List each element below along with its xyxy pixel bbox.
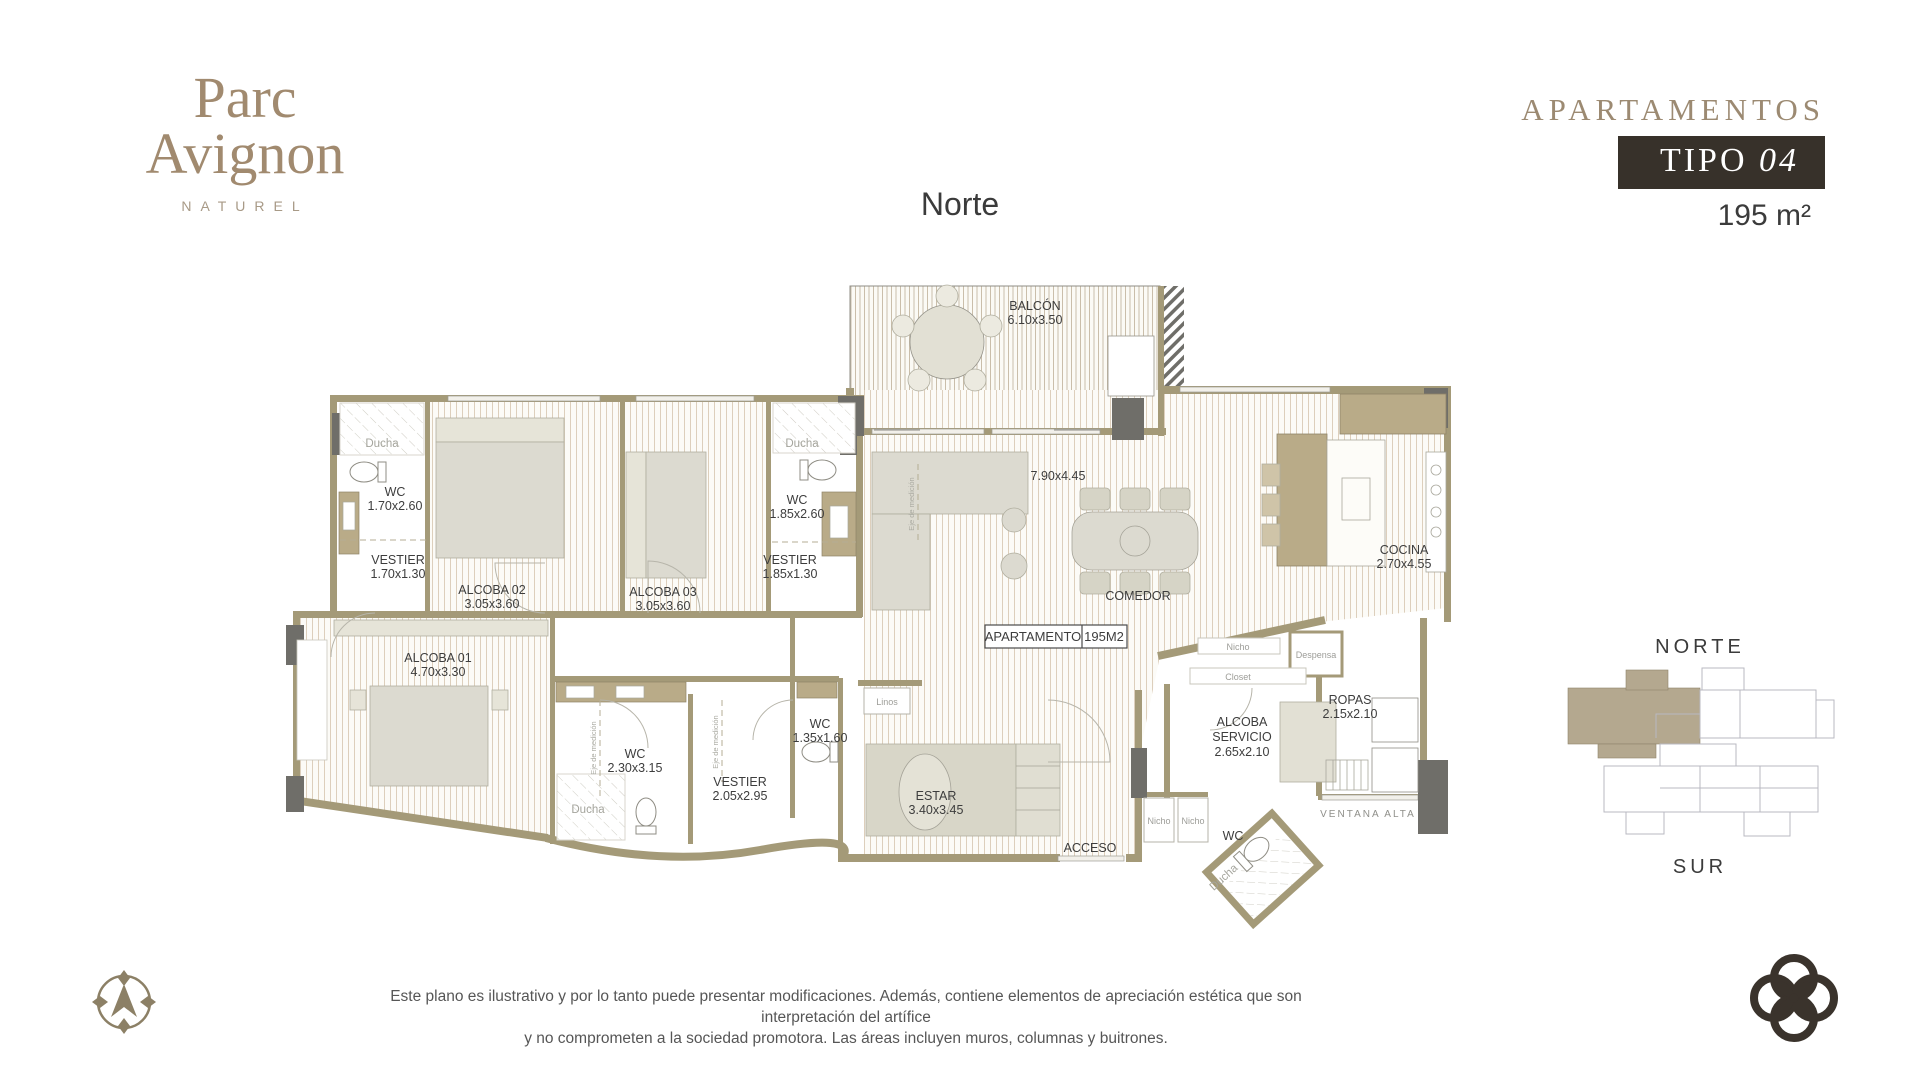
dining-chair (1120, 488, 1150, 510)
armchair (1002, 508, 1026, 532)
label-vestier2-dims: 1.70x1.30 (371, 567, 426, 581)
toilet-bowl (808, 460, 836, 480)
toilet (350, 462, 386, 482)
floor-plan: APARTAMENTO 195M2 BALCÓN 6.10x3.50 WC 1.… (0, 0, 1920, 1080)
sink-bath1-a (566, 686, 594, 698)
label-ropas: ROPAS (1329, 693, 1372, 707)
rosette-logo (1754, 958, 1834, 1038)
stool (1262, 464, 1280, 486)
chair (980, 315, 1002, 337)
label-acceso: ACCESO (1064, 841, 1117, 855)
wall-bath1-left (550, 618, 555, 844)
wall-nichos-top (1138, 792, 1208, 797)
dining-chair (1160, 488, 1190, 510)
toilet-bowl (350, 462, 378, 482)
label-ducha-1: Ducha (365, 438, 399, 450)
bedroom1-wardrobe (297, 640, 327, 760)
toilet (636, 798, 656, 834)
sink-bath1-b (616, 686, 644, 698)
label-estar-dims: 3.40x3.45 (909, 803, 964, 817)
compass-point-s (118, 1018, 130, 1034)
sink-bath2 (343, 502, 355, 530)
compass-point-e (140, 996, 156, 1008)
wall-bedroom2-3 (620, 402, 625, 614)
wall-bath2-bedroom2 (425, 402, 430, 614)
label-despensa: Despensa (1296, 650, 1337, 660)
toilet-bowl (802, 742, 830, 762)
keyplan-unit (1816, 700, 1834, 738)
keyplan-unit (1626, 812, 1664, 834)
wall-baths-top (555, 676, 839, 682)
label-servicio-dims: 2.65x2.10 (1215, 745, 1270, 759)
wall-vestier-wc (790, 618, 795, 818)
stool (1262, 494, 1280, 516)
compass-needle (111, 984, 137, 1017)
label-vestier3: VESTIER (763, 553, 817, 567)
tag-area: 195M2 (1084, 629, 1124, 644)
wall-bedrooms-bottom (293, 611, 862, 618)
label-closet: Closet (1225, 672, 1251, 682)
label-estar: ESTAR (916, 789, 957, 803)
balcony-hatch-strip (1162, 286, 1184, 392)
keyplan-unit (1660, 744, 1736, 766)
label-wc1-dims: 2.30x3.15 (608, 761, 663, 775)
label-vestier3-dims: 1.85x1.30 (763, 567, 818, 581)
label-wc-servicio: WC (1223, 829, 1244, 843)
chair (936, 285, 958, 307)
label-ventana-alta: VENTANA ALTA (1320, 809, 1416, 820)
bed2 (436, 442, 564, 558)
window-bedroom2 (448, 396, 600, 401)
sink-bath3 (830, 506, 848, 538)
wall-estar-bottom (838, 854, 1060, 862)
bed1-closet (334, 620, 548, 636)
label-wc3: WC (787, 493, 808, 507)
label-wc-social: WC (810, 717, 831, 731)
label-ducha-3: Ducha (571, 804, 605, 816)
keyplan-unit (1700, 690, 1816, 738)
dining-table (1072, 512, 1198, 570)
label-alcoba01-dims: 4.70x3.30 (411, 665, 466, 679)
label-nicho-1: Nicho (1147, 816, 1170, 826)
window-kitchen (1180, 387, 1330, 392)
apartment-tag: APARTAMENTO 195M2 (985, 625, 1127, 648)
wall-linos-top (858, 680, 922, 686)
tag-name: APARTAMENTO (985, 629, 1082, 644)
label-balcon: BALCÓN (1009, 298, 1060, 313)
label-servicio-1: ALCOBA (1217, 715, 1268, 729)
estar-shelves (1016, 744, 1060, 836)
wall-wc-estar (838, 678, 843, 858)
label-cocina-dims: 2.70x4.55 (1377, 557, 1432, 571)
chair (908, 369, 930, 391)
label-ducha-2: Ducha (785, 438, 819, 450)
rosette-center (1790, 994, 1799, 1003)
label-vestier1-dims: 2.05x2.95 (713, 789, 768, 803)
keyplan-unit (1702, 668, 1744, 690)
sofa-chaise (872, 514, 930, 610)
label-alcoba02-dims: 3.05x3.60 (465, 597, 520, 611)
label-balcon-dims: 6.10x3.50 (1008, 313, 1063, 327)
wall-balcony-right (1158, 286, 1164, 436)
armchair (1001, 553, 1027, 579)
label-ropas-dims: 2.15x2.10 (1323, 707, 1378, 721)
balcony-table (910, 305, 984, 379)
kitchen-counter (1277, 434, 1327, 566)
toilet-tank (830, 742, 838, 762)
label-cocina: COCINA (1380, 543, 1429, 557)
highlight-main (1568, 688, 1700, 744)
chair (892, 315, 914, 337)
vanity-wc-social (797, 682, 837, 698)
label-wc2-dims: 1.70x2.60 (368, 499, 423, 513)
column (286, 776, 304, 812)
toilet-bowl (636, 798, 656, 826)
column (1131, 748, 1147, 798)
balcony-planter (1108, 336, 1154, 396)
nightstand (350, 690, 366, 710)
label-sala-dims: 7.90x4.45 (1031, 469, 1086, 483)
keyplan-unit (1744, 812, 1790, 836)
label-nicho-2: Nicho (1181, 816, 1204, 826)
compass-point-w (92, 996, 108, 1008)
keyplan-unit (1604, 766, 1818, 812)
toilet-tank (636, 826, 656, 834)
washer (1372, 698, 1418, 742)
wall-bath1-vestier (688, 694, 693, 844)
toilet (802, 742, 838, 762)
label-alcoba03: ALCOBA 03 (629, 585, 696, 599)
highlight-tab (1598, 744, 1656, 758)
rack-lines (1333, 760, 1361, 790)
bed2-head (436, 418, 564, 442)
window-ropas (1322, 795, 1418, 800)
appliance-strip (1426, 452, 1446, 572)
toilet-tank (800, 460, 808, 480)
label-wc2: WC (385, 485, 406, 499)
sofa (872, 452, 1028, 514)
label-alcoba01: ALCOBA 01 (404, 651, 471, 665)
label-eje-3: Eje de medición (907, 477, 916, 530)
compass-icon (92, 970, 156, 1034)
dining-chair (1080, 488, 1110, 510)
highlight-top (1626, 670, 1668, 690)
column (1418, 760, 1448, 834)
nightstand (492, 690, 508, 710)
label-wc3-dims: 1.85x2.60 (770, 507, 825, 521)
label-linos: Linos (876, 697, 898, 707)
label-alcoba03-dims: 3.05x3.60 (636, 599, 691, 613)
label-wc1: WC (625, 747, 646, 761)
bed1 (370, 686, 488, 786)
label-eje-1: Eje de medición (589, 721, 598, 774)
chair (964, 369, 986, 391)
kitchen-sink-counter (1327, 440, 1385, 566)
door-arc-wc-social (753, 700, 793, 740)
bed3-head (626, 452, 646, 578)
toilet-tank (378, 462, 386, 482)
label-servicio-2: SERVICIO (1212, 730, 1272, 744)
label-wc-social-dims: 1.35x1.60 (793, 731, 848, 745)
entry-threshold (1058, 856, 1124, 861)
label-alcoba02: ALCOBA 02 (458, 583, 525, 597)
column (1112, 398, 1144, 440)
bed3 (646, 452, 706, 578)
dryer (1372, 748, 1418, 792)
label-nicho-3: Nicho (1226, 642, 1249, 652)
door-arc-wc-principal (600, 700, 648, 748)
wall-ropas-right (1420, 618, 1427, 768)
compass-point-n (118, 970, 130, 986)
toilet (800, 460, 836, 480)
window-bedroom3 (636, 396, 754, 401)
label-vestier2: VESTIER (371, 553, 425, 567)
keyplan-building (1568, 668, 1834, 836)
label-eje-2: Eje de medición (711, 715, 720, 768)
wall-bottom-curve (546, 838, 845, 858)
stool (1262, 524, 1280, 546)
kitchen-counter-top (1340, 394, 1446, 434)
label-vestier1: VESTIER (713, 775, 767, 789)
label-comedor: COMEDOR (1105, 589, 1170, 603)
